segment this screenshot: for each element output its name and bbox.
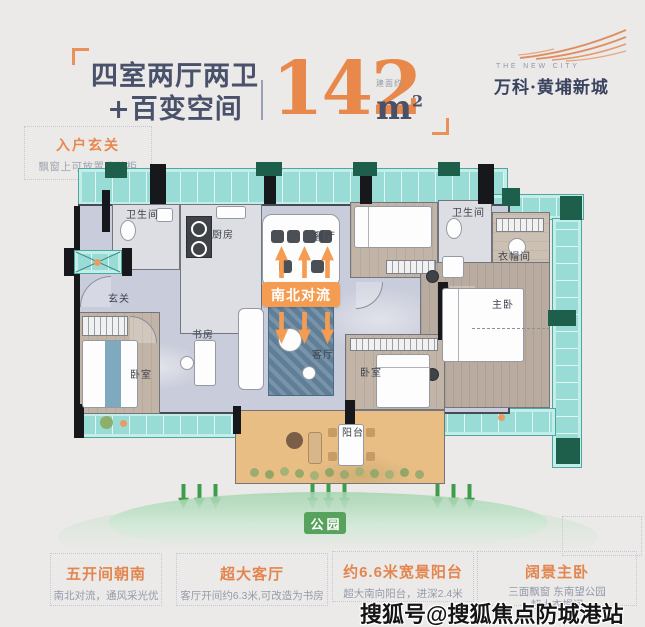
column-green xyxy=(105,162,127,178)
blanket xyxy=(105,341,121,407)
flow-badge: 南北对流 xyxy=(262,282,340,307)
plant xyxy=(100,416,113,429)
entry-callout-title: 入户玄关 xyxy=(25,135,151,155)
burner-icon xyxy=(191,241,207,257)
balcony-plants xyxy=(250,468,259,477)
room-label-living: 客厅 xyxy=(312,346,334,361)
wall-segment xyxy=(64,248,74,276)
floor-plan: 卫生间 厨房 餐厅 玄关 书房 客厅 卧室 卧室 卫生间 衣帽间 主卧 阳台 南… xyxy=(50,162,595,507)
wall-west xyxy=(74,206,80,412)
column-green xyxy=(353,162,377,176)
toilet xyxy=(446,218,462,239)
feature-title: 五开间朝南 xyxy=(66,563,146,584)
lounge-bed xyxy=(308,432,322,464)
feature-desc: 客厅开间约6.3米,可改造为书房 xyxy=(180,590,324,603)
closet-dashed-divider xyxy=(472,328,550,329)
room-label-study: 书房 xyxy=(192,326,214,341)
room-label-master: 主卧 xyxy=(492,296,514,311)
feature-box-living-room: 超大客厅 客厅开间约6.3米,可改造为书房 xyxy=(176,553,328,606)
balcony-chair xyxy=(328,452,337,461)
bed-b xyxy=(376,354,430,408)
column-black xyxy=(150,164,166,204)
toilet xyxy=(120,220,136,241)
room-label-bath2: 卫生间 xyxy=(452,204,485,219)
stove xyxy=(186,216,212,258)
brand-name-cn: 万科·黄埔新城 xyxy=(494,73,609,98)
wardrobe xyxy=(350,338,438,351)
burner-icon xyxy=(191,221,207,237)
column-black xyxy=(264,176,276,204)
bed-a xyxy=(354,206,432,248)
accent-dot xyxy=(94,259,101,266)
accent-dot xyxy=(498,414,505,421)
room-label-bedroom-left: 卧室 xyxy=(130,366,152,381)
page-title-line1: 四室两厅两卫 xyxy=(86,60,264,93)
room-label-balcony: 阳台 xyxy=(342,424,364,439)
column-green xyxy=(502,188,520,206)
feature-box-orientation: 五开间朝南 南北对流，通风采光优 xyxy=(50,553,162,606)
wardrobe xyxy=(82,316,128,336)
feature-box-balcony: 约6.6米宽景阳台 超大南向阳台，进深2.4米 xyxy=(332,551,474,602)
pillow xyxy=(355,207,369,247)
closet-shelf xyxy=(496,218,544,232)
pillow xyxy=(377,355,429,368)
page-title-line2: +百变空间 xyxy=(86,93,264,126)
brand-wing-icon xyxy=(518,28,630,62)
room-label-bedroom-mid: 卧室 xyxy=(360,364,382,379)
page-title: 四室两厅两卫 +百变空间 xyxy=(86,60,264,126)
area-unit-exp: 2 xyxy=(412,92,423,111)
room-label-foyer: 玄关 xyxy=(108,290,130,305)
column-green xyxy=(560,196,582,220)
room-label-kitchen: 厨房 xyxy=(212,226,234,241)
corner-bracket-bottom-right xyxy=(432,118,449,135)
feature-desc: 南北对流，通风采光优 xyxy=(54,590,159,603)
window-band-east xyxy=(552,218,582,468)
sofa xyxy=(238,308,264,390)
shower xyxy=(442,256,464,278)
dotted-placeholder-box xyxy=(562,516,642,556)
feature-title: 超大客厅 xyxy=(220,563,284,584)
column-black xyxy=(478,164,494,204)
park-badge: 公园 xyxy=(304,512,346,534)
column-green xyxy=(438,162,460,176)
area-unit: m2 xyxy=(376,91,423,125)
wall-segment xyxy=(122,248,132,276)
column-green xyxy=(256,162,282,176)
nightstand xyxy=(426,270,439,283)
area-unit-m: m xyxy=(376,88,412,128)
balcony-chair xyxy=(366,452,375,461)
place-setting xyxy=(271,230,284,243)
desk-chair xyxy=(180,356,194,370)
accent-dot xyxy=(120,420,127,427)
area-unit-block: 建面约 m2 xyxy=(376,78,423,125)
column-black xyxy=(360,176,372,204)
header-divider xyxy=(261,80,263,120)
balcony-chair xyxy=(328,428,337,437)
room-label-dining: 餐厅 xyxy=(314,228,336,243)
side-table xyxy=(302,366,316,380)
place-setting xyxy=(311,260,324,273)
feature-title: 约6.6米宽景阳台 xyxy=(343,561,463,582)
wall-segment xyxy=(74,404,84,438)
lounge-chair xyxy=(286,432,303,449)
feature-title: 阔景主卧 xyxy=(525,561,589,582)
kitchen-sink xyxy=(216,206,246,219)
room-label-bath1: 卫生间 xyxy=(126,206,159,221)
pillow xyxy=(443,289,459,361)
column-green xyxy=(548,310,576,326)
watermark: 搜狐号@搜狐焦点防城港站 xyxy=(360,597,623,627)
brand-name-en: THE NEW CITY xyxy=(496,63,580,70)
place-setting xyxy=(287,230,300,243)
column-green xyxy=(556,438,580,464)
room-label-closet: 衣帽间 xyxy=(498,248,531,263)
balcony-chair xyxy=(366,428,375,437)
poster-canvas: 四室两厅两卫 +百变空间 142 建面约 m2 THE NEW CITY 万科·… xyxy=(0,0,645,627)
wall-segment xyxy=(102,190,110,232)
wall-segment xyxy=(233,406,241,434)
study-desk xyxy=(194,340,216,386)
